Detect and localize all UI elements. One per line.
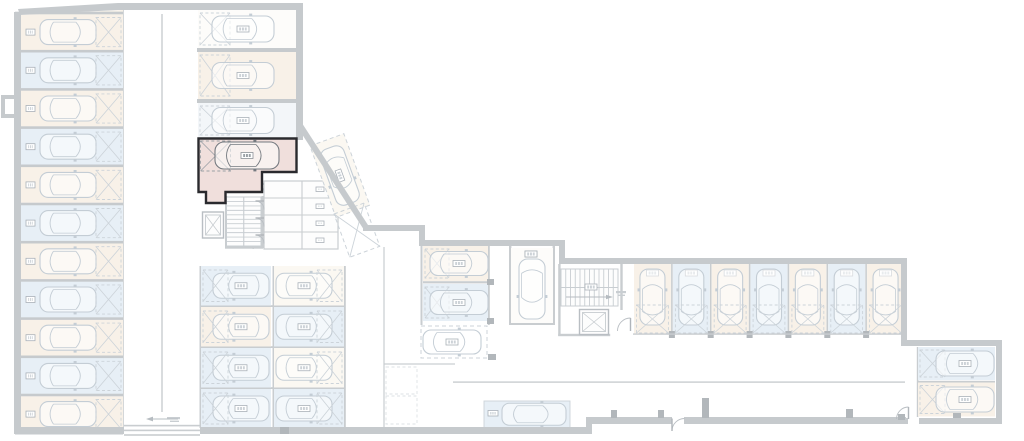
car-mirror — [310, 298, 313, 300]
label-mark — [320, 223, 321, 225]
label-plate — [237, 118, 249, 124]
car-mirror — [859, 288, 861, 291]
parking-space — [673, 264, 710, 334]
label-plate — [453, 261, 465, 267]
label-plate — [488, 411, 498, 417]
label-mark — [237, 366, 239, 369]
parking-plan-canvas — [0, 0, 1024, 441]
car-mirror — [743, 288, 745, 291]
wall — [296, 3, 303, 140]
car-icon — [212, 14, 274, 45]
car-mirror — [253, 169, 256, 171]
car-body — [679, 269, 704, 325]
label-mark — [32, 260, 33, 263]
car-icon — [213, 312, 269, 342]
label-mark — [494, 412, 495, 415]
label-plate — [316, 238, 324, 243]
car-mirror — [74, 121, 77, 123]
annotation-mark — [618, 295, 625, 296]
label-plate — [298, 324, 310, 330]
parking-space — [274, 307, 344, 347]
label-mark — [306, 366, 308, 369]
wall — [124, 434, 200, 436]
car-icon — [40, 246, 96, 276]
column-pier — [702, 398, 709, 418]
label-mark — [303, 325, 305, 328]
car-mirror — [310, 421, 313, 423]
car-mirror — [74, 208, 77, 210]
column-pier — [487, 318, 494, 324]
car-mirror — [458, 328, 461, 330]
label-mark — [527, 253, 529, 256]
label-plate — [26, 29, 35, 35]
label-mark — [32, 31, 33, 34]
car-mirror — [310, 312, 313, 314]
label-plate — [26, 182, 35, 188]
car-mirror — [310, 380, 313, 382]
car-mirror — [898, 288, 900, 291]
car-mirror — [540, 401, 543, 403]
car-mirror — [249, 14, 252, 16]
label-mark — [300, 366, 302, 369]
parking-space — [274, 348, 344, 388]
label-plate — [453, 300, 465, 306]
label-mark — [28, 31, 29, 34]
storage-cell — [386, 367, 417, 394]
label-mark — [28, 260, 29, 263]
label-mark — [490, 412, 491, 415]
label-mark — [32, 107, 33, 110]
elevator — [580, 310, 609, 335]
parking-space — [21, 91, 123, 127]
label-mark — [239, 28, 241, 31]
car-mirror — [74, 350, 77, 352]
car-icon — [276, 353, 332, 383]
label-mark — [30, 374, 31, 377]
car-mirror — [74, 132, 77, 134]
label-mark — [961, 398, 963, 401]
car-mirror — [517, 295, 519, 298]
car-body — [502, 403, 566, 425]
label-mark — [245, 28, 247, 31]
car-mirror — [249, 105, 252, 107]
label-mark — [967, 398, 969, 401]
label-mark — [30, 69, 31, 72]
label-mark — [461, 262, 463, 265]
door-arc — [672, 419, 685, 432]
column-pier — [898, 414, 905, 420]
car-mirror — [676, 288, 678, 291]
wall — [15, 279, 123, 282]
car-mirror — [232, 298, 235, 300]
label-mark — [300, 407, 302, 410]
parking-space — [21, 282, 123, 318]
car-mirror — [545, 295, 547, 298]
car-icon — [40, 55, 96, 85]
car-icon — [40, 132, 96, 162]
parking-space — [21, 396, 123, 432]
label-mark — [593, 286, 595, 289]
car-icon — [638, 269, 668, 325]
label-plate — [235, 283, 247, 289]
label-mark — [451, 341, 453, 344]
label-plate — [235, 324, 247, 330]
wall — [124, 430, 200, 432]
car-mirror — [74, 197, 77, 199]
label-mark — [30, 298, 31, 301]
car-mirror — [310, 271, 313, 273]
car-mirror — [249, 42, 252, 44]
car-body — [40, 96, 96, 121]
car-mirror — [465, 249, 468, 251]
label-mark — [240, 407, 242, 410]
car-mirror — [310, 339, 313, 341]
wall — [827, 264, 829, 334]
label-mark — [461, 301, 463, 304]
car-mirror — [971, 385, 974, 387]
label-mark — [32, 413, 33, 416]
wall — [15, 394, 123, 397]
label-mark — [318, 240, 319, 242]
label-plate — [316, 187, 324, 192]
label-mark — [30, 413, 31, 416]
label-mark — [240, 325, 242, 328]
column-pier — [611, 410, 617, 418]
car-icon — [213, 271, 269, 301]
car-mirror — [232, 271, 235, 273]
car-mirror — [232, 421, 235, 423]
door-swing — [618, 318, 631, 331]
label-plate — [298, 365, 310, 371]
car-mirror — [74, 312, 77, 314]
car-mirror — [74, 83, 77, 85]
label-mark — [454, 341, 456, 344]
label-mark — [243, 325, 245, 328]
label-mark — [28, 69, 29, 72]
wall — [620, 264, 622, 310]
label-mark — [237, 325, 239, 328]
wall — [225, 247, 263, 249]
car-mirror — [715, 288, 717, 291]
wall — [919, 418, 1002, 424]
car-icon — [213, 353, 269, 383]
car-body — [40, 363, 96, 388]
wall — [383, 247, 384, 427]
wall — [421, 246, 423, 325]
label-mark — [533, 253, 535, 256]
car-icon — [215, 140, 279, 172]
car-mirror — [704, 288, 706, 291]
label-mark — [964, 398, 966, 401]
car-body — [40, 134, 96, 159]
staircase — [227, 197, 262, 246]
label-mark — [961, 362, 963, 365]
car-icon — [212, 105, 274, 136]
label-plate — [237, 26, 249, 32]
car-mirror — [74, 274, 77, 276]
label-mark — [240, 284, 242, 287]
car-icon — [276, 394, 332, 424]
label-mark — [306, 407, 308, 410]
wall — [559, 258, 907, 264]
car-mirror — [310, 394, 313, 396]
storage-cell — [386, 396, 417, 424]
label-mark — [321, 206, 322, 208]
wall — [633, 333, 905, 334]
wall — [901, 258, 907, 346]
column-pier — [846, 409, 853, 418]
wall — [15, 165, 123, 168]
label-plate — [26, 373, 35, 379]
car-mirror — [74, 159, 77, 161]
parking-space — [198, 10, 296, 48]
car-icon — [40, 399, 96, 429]
car-mirror — [74, 55, 77, 57]
parking-space — [751, 264, 788, 334]
car-icon — [936, 349, 994, 379]
label-plate — [298, 406, 310, 412]
label-plate — [26, 67, 35, 73]
label-mark — [587, 286, 589, 289]
label-mark — [492, 412, 493, 415]
car-body — [40, 211, 96, 236]
label-mark — [30, 336, 31, 339]
car-mirror — [465, 315, 468, 317]
car-icon — [832, 269, 862, 325]
label-mark — [455, 262, 457, 265]
label-mark — [321, 223, 322, 225]
car-body — [519, 259, 545, 319]
label-mark — [320, 240, 321, 242]
parking-space — [634, 264, 671, 334]
label-plate — [959, 397, 971, 403]
label-mark — [246, 154, 248, 157]
label-mark — [243, 154, 245, 157]
car-icon — [40, 361, 96, 391]
label-mark — [30, 222, 31, 225]
label-mark — [303, 366, 305, 369]
parking-space — [21, 358, 123, 394]
label-plate — [525, 251, 537, 257]
parking-space — [201, 307, 271, 347]
wall — [161, 14, 162, 412]
label-mark — [458, 301, 460, 304]
floor-plan-svg — [0, 0, 1024, 441]
label-mark — [32, 69, 33, 72]
car-mirror — [232, 380, 235, 382]
wall — [749, 264, 751, 334]
label-mark — [242, 28, 244, 31]
car-icon — [936, 385, 994, 415]
car-icon — [40, 17, 96, 47]
car-mirror — [253, 140, 256, 142]
car-mirror — [832, 288, 834, 291]
car-icon — [715, 269, 745, 325]
car-mirror — [665, 288, 667, 291]
car-icon — [430, 288, 488, 317]
car-mirror — [74, 285, 77, 287]
car-icon — [40, 94, 96, 124]
label-mark — [318, 206, 319, 208]
wall — [558, 264, 560, 336]
label-mark — [243, 407, 245, 410]
wall — [419, 240, 565, 246]
wall — [453, 381, 905, 382]
door-arc — [618, 318, 631, 331]
label-mark — [28, 413, 29, 416]
car-body — [834, 269, 859, 325]
label-mark — [32, 298, 33, 301]
label-mark — [321, 240, 322, 242]
parking-space — [789, 264, 826, 334]
label-plate — [237, 73, 249, 79]
label-plate — [241, 153, 253, 159]
parking-space — [201, 266, 271, 306]
wall — [671, 264, 673, 334]
parking-space — [712, 264, 749, 334]
label-plate — [585, 284, 597, 290]
car-mirror — [74, 361, 77, 363]
annotation-mark — [616, 291, 626, 293]
label-mark — [30, 145, 31, 148]
wall — [384, 363, 455, 364]
car-mirror — [310, 353, 313, 355]
label-mark — [300, 325, 302, 328]
wall — [124, 425, 200, 427]
label-plate — [26, 411, 35, 417]
car-mirror — [871, 288, 873, 291]
car-icon — [430, 249, 488, 278]
car-body — [795, 269, 820, 325]
wall — [15, 241, 123, 244]
wall — [197, 48, 298, 52]
label-mark — [30, 31, 31, 34]
parking-space — [201, 389, 271, 428]
car-mirror — [754, 288, 756, 291]
parking-space — [198, 103, 296, 138]
parking-space — [21, 205, 123, 241]
label-mark — [303, 407, 305, 410]
car-mirror — [793, 288, 795, 291]
label-mark — [30, 107, 31, 110]
wall — [15, 356, 123, 359]
parking-space — [198, 52, 296, 99]
label-plate — [298, 283, 310, 289]
label-mark — [28, 222, 29, 225]
car-mirror — [74, 236, 77, 238]
label-mark — [28, 374, 29, 377]
column-pier — [487, 279, 494, 285]
parking-space — [21, 10, 123, 51]
label-mark — [30, 183, 31, 186]
wall — [590, 417, 672, 424]
parking-space — [21, 320, 123, 356]
car-mirror — [971, 376, 974, 378]
parking-space — [423, 284, 488, 321]
car-icon — [793, 269, 823, 325]
car-body — [40, 325, 96, 350]
car-body — [40, 402, 96, 427]
label-mark — [239, 119, 241, 122]
label-mark — [964, 362, 966, 365]
label-mark — [28, 107, 29, 110]
car-mirror — [74, 388, 77, 390]
parking-space — [21, 243, 123, 279]
car-mirror — [74, 94, 77, 96]
label-mark — [249, 154, 251, 157]
parking-space — [274, 389, 344, 428]
label-mark — [590, 286, 592, 289]
label-plate — [235, 365, 247, 371]
wall — [15, 88, 123, 91]
wall — [344, 266, 346, 428]
label-mark — [306, 284, 308, 287]
label-mark — [28, 183, 29, 186]
parking-space — [201, 348, 271, 388]
car-icon — [517, 259, 548, 319]
car-mirror — [971, 349, 974, 351]
label-plate — [446, 339, 458, 345]
label-mark — [28, 145, 29, 148]
column-pier — [953, 413, 961, 418]
label-plate — [26, 258, 35, 264]
label-mark — [245, 74, 247, 77]
car-mirror — [249, 89, 252, 91]
label-mark — [237, 407, 239, 410]
wall — [200, 427, 590, 434]
car-body — [757, 269, 782, 325]
car-mirror — [638, 288, 640, 291]
car-mirror — [465, 288, 468, 290]
car-mirror — [74, 246, 77, 248]
car-icon — [212, 60, 274, 91]
car-mirror — [249, 134, 252, 136]
wall — [710, 264, 712, 334]
label-mark — [455, 301, 457, 304]
car-icon — [40, 285, 96, 315]
car-icon — [276, 312, 332, 342]
door-swing — [672, 419, 685, 432]
car-mirror — [249, 60, 252, 62]
wall — [197, 99, 298, 103]
wall — [15, 126, 123, 129]
car-body — [40, 287, 96, 312]
label-mark — [448, 341, 450, 344]
parking-space — [21, 52, 123, 88]
label-mark — [300, 284, 302, 287]
wall — [14, 427, 124, 434]
wall — [15, 317, 123, 320]
label-mark — [242, 119, 244, 122]
car-icon — [40, 170, 96, 200]
car-mirror — [820, 288, 822, 291]
wall — [996, 340, 1002, 424]
label-mark — [303, 284, 305, 287]
annotation-mark — [170, 421, 179, 422]
car-icon — [502, 401, 566, 428]
label-mark — [28, 298, 29, 301]
label-plate — [26, 220, 35, 226]
wall — [423, 281, 488, 283]
label-mark — [245, 119, 247, 122]
car-icon — [276, 271, 332, 301]
car-body — [40, 172, 96, 197]
wall — [15, 203, 123, 206]
car-icon — [423, 328, 481, 357]
parking-space — [867, 264, 904, 334]
wall — [865, 264, 867, 334]
label-mark — [243, 284, 245, 287]
